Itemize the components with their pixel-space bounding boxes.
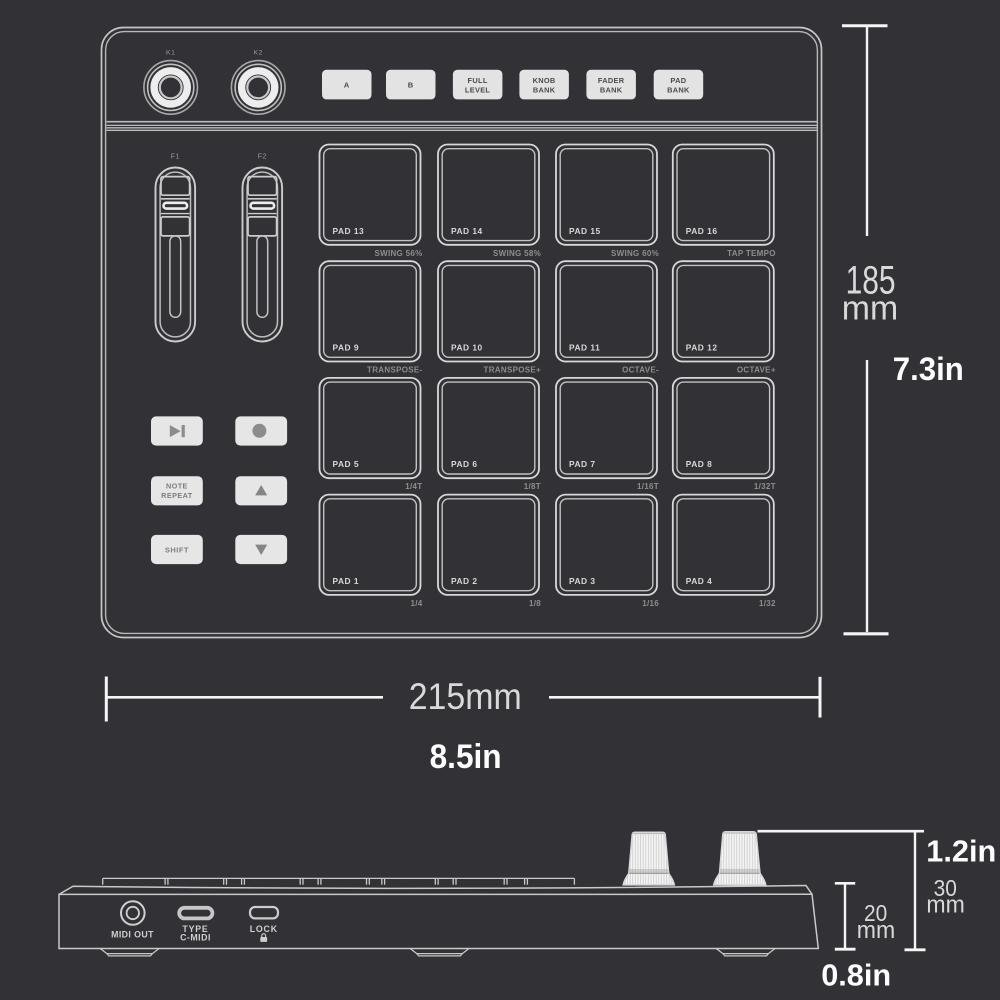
svg-text:C-MIDI: C-MIDI [180, 933, 211, 943]
svg-text:K1: K1 [166, 50, 175, 57]
svg-text:LOCK: LOCK [250, 924, 278, 934]
svg-text:1/32: 1/32 [759, 599, 776, 608]
svg-text:mm: mm [842, 290, 898, 328]
svg-text:PAD 1: PAD 1 [333, 576, 360, 586]
svg-text:1/8T: 1/8T [524, 482, 541, 491]
svg-text:7.3in: 7.3in [893, 351, 964, 387]
svg-text:1/16: 1/16 [642, 599, 659, 608]
svg-text:FADER: FADER [598, 76, 625, 85]
svg-text:MIDI OUT: MIDI OUT [111, 930, 154, 940]
svg-text:OCTAVE-: OCTAVE- [622, 366, 659, 375]
svg-text:B: B [408, 81, 414, 90]
svg-text:PAD 3: PAD 3 [569, 576, 596, 586]
svg-text:LEVEL: LEVEL [465, 86, 491, 95]
svg-text:REPEAT: REPEAT [161, 491, 193, 500]
svg-text:PAD 11: PAD 11 [569, 343, 600, 353]
svg-text:BANK: BANK [600, 86, 623, 95]
svg-text:mm: mm [857, 917, 895, 944]
svg-text:mm: mm [926, 892, 964, 919]
svg-text:PAD 14: PAD 14 [451, 226, 483, 236]
svg-text:K2: K2 [254, 50, 263, 57]
svg-text:TRANSPOSE-: TRANSPOSE- [367, 366, 422, 375]
svg-text:F2: F2 [258, 154, 267, 161]
svg-text:F1: F1 [171, 154, 180, 161]
svg-text:OCTAVE+: OCTAVE+ [737, 366, 776, 375]
svg-text:TRANSPOSE+: TRANSPOSE+ [484, 366, 541, 375]
svg-text:PAD 8: PAD 8 [686, 459, 713, 469]
svg-text:PAD 10: PAD 10 [451, 343, 483, 353]
svg-text:8.5in: 8.5in [430, 738, 502, 776]
svg-text:BANK: BANK [533, 86, 556, 95]
svg-text:PAD 16: PAD 16 [686, 226, 718, 236]
svg-text:PAD 6: PAD 6 [451, 459, 478, 469]
svg-text:KNOB: KNOB [533, 76, 556, 85]
svg-text:1/8: 1/8 [529, 599, 541, 608]
svg-text:PAD 2: PAD 2 [451, 576, 478, 586]
svg-text:A: A [344, 81, 350, 90]
svg-text:215mm: 215mm [409, 675, 522, 717]
svg-text:0.8in: 0.8in [821, 958, 891, 993]
svg-text:PAD: PAD [670, 76, 686, 85]
svg-text:PAD 9: PAD 9 [333, 343, 360, 353]
svg-text:SWING 56%: SWING 56% [374, 249, 422, 258]
svg-text:NOTE: NOTE [166, 482, 188, 491]
svg-text:PAD 13: PAD 13 [333, 226, 365, 236]
svg-text:SHIFT: SHIFT [165, 546, 189, 555]
svg-text:TAP TEMPO: TAP TEMPO [727, 249, 776, 258]
svg-text:SWING 60%: SWING 60% [611, 249, 659, 258]
svg-text:PAD 5: PAD 5 [333, 459, 360, 469]
svg-text:1/4T: 1/4T [405, 482, 422, 491]
svg-text:PAD 4: PAD 4 [686, 576, 713, 586]
svg-text:PAD 15: PAD 15 [569, 226, 601, 236]
svg-text:PAD 12: PAD 12 [686, 343, 718, 353]
svg-text:1/32T: 1/32T [754, 482, 776, 491]
svg-text:BANK: BANK [667, 86, 690, 95]
svg-text:PAD 7: PAD 7 [569, 459, 596, 469]
svg-text:1/4: 1/4 [410, 599, 422, 608]
svg-text:FULL: FULL [468, 76, 488, 85]
svg-text:1.2in: 1.2in [926, 834, 996, 869]
svg-text:SWING 58%: SWING 58% [493, 249, 541, 258]
svg-text:1/16T: 1/16T [637, 482, 659, 491]
